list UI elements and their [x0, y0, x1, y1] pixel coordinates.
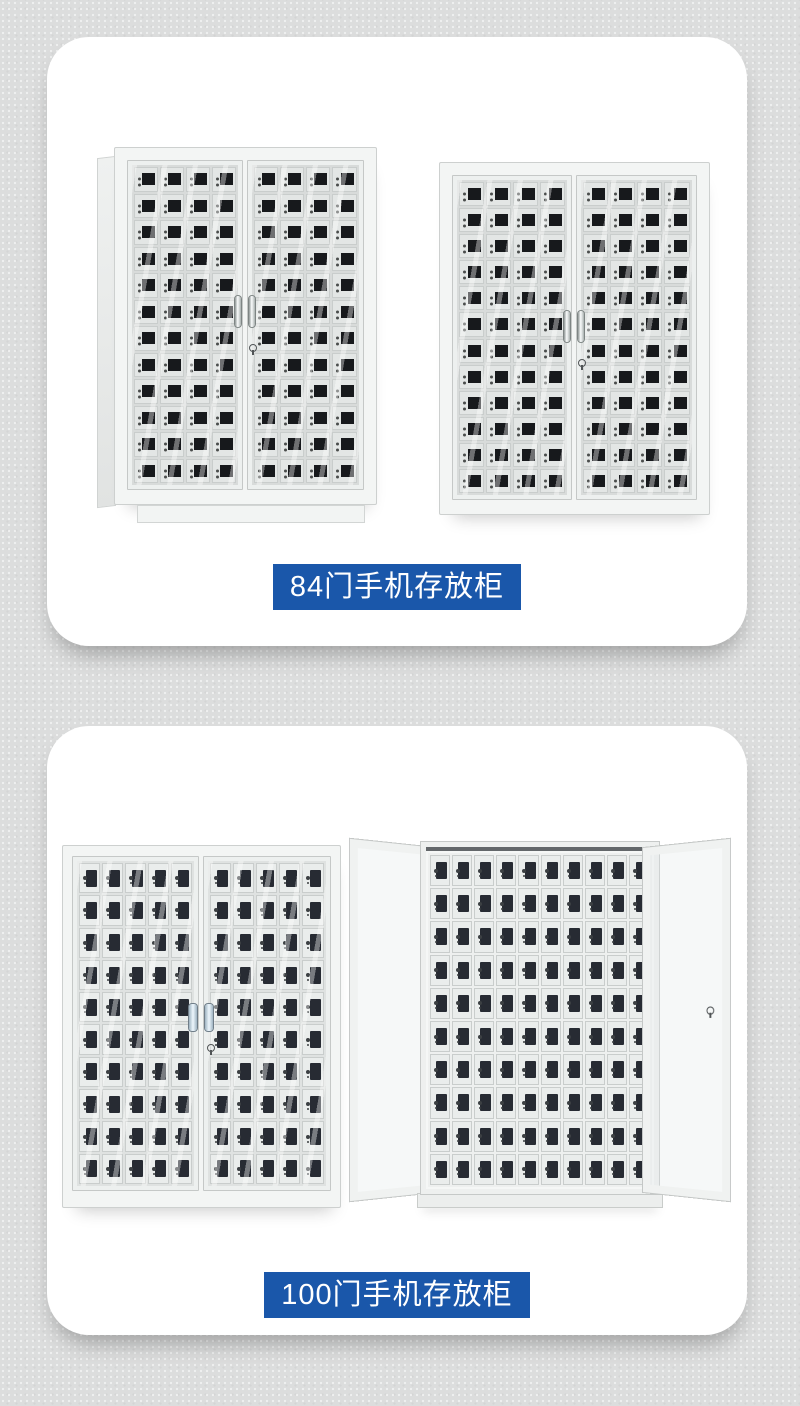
locker-cell [279, 895, 300, 925]
locker-cell [585, 855, 605, 886]
locker-cell [452, 1121, 472, 1152]
lock-icon [106, 876, 110, 880]
locker-cell [279, 863, 300, 893]
locker-window [646, 475, 659, 487]
locker-cell [186, 353, 210, 378]
lock-icon [138, 390, 141, 393]
lock-icon [567, 1035, 571, 1039]
locker-window [310, 999, 321, 1016]
locker-window [646, 345, 659, 357]
lock-icon [641, 297, 644, 300]
locker-cell [637, 182, 662, 206]
lock-icon [668, 349, 671, 352]
locker-cell [637, 286, 662, 310]
locker-cell [541, 988, 561, 1019]
lock-icon [434, 1134, 438, 1138]
lock-icon [545, 1035, 549, 1039]
lock-icon [83, 1135, 87, 1139]
lock-icon [284, 204, 287, 207]
locker-cell [585, 1087, 605, 1118]
locker-window [86, 1128, 97, 1145]
locker-window [194, 385, 207, 397]
lock-icon [260, 1102, 264, 1106]
lock-icon [478, 935, 482, 939]
locker-cell [256, 1057, 277, 1087]
locker-window [220, 438, 233, 450]
locker-cell [430, 888, 450, 919]
locker-cell [233, 863, 254, 893]
locker-cell [210, 1121, 231, 1151]
locker-cell [474, 1021, 494, 1052]
lock-icon [175, 973, 179, 977]
locker-window [286, 1031, 297, 1048]
lock-icon [214, 1070, 218, 1074]
locker-cell [637, 208, 662, 232]
lock-icon [668, 219, 671, 222]
locker-window [142, 359, 155, 371]
lock-icon [237, 1102, 241, 1106]
lock-icon [190, 231, 193, 234]
locker-window [155, 1096, 166, 1113]
lock-icon [310, 310, 313, 313]
locker-cell [452, 855, 472, 886]
lock-icon [190, 416, 193, 419]
locker-cell [610, 260, 635, 284]
locker-window [288, 332, 301, 344]
locker-window [288, 200, 301, 212]
lock-icon [310, 390, 313, 393]
locker-cell [79, 928, 100, 958]
locker-cell [459, 417, 484, 441]
locker-cell [540, 391, 565, 415]
locker-window [86, 1096, 97, 1113]
lock-icon [589, 1101, 593, 1105]
locker-window [288, 412, 301, 424]
lock-icon [522, 1035, 526, 1039]
lock-icon [175, 1070, 179, 1074]
locker-cell [102, 895, 123, 925]
locker-window [341, 173, 354, 185]
locker-window [674, 371, 687, 383]
locker-cell [637, 234, 662, 258]
locker-cell [563, 855, 583, 886]
locker-cell [306, 326, 330, 351]
locker-cell [233, 1121, 254, 1151]
locker-window [168, 465, 181, 477]
locker-cell [541, 855, 561, 886]
lock-icon [237, 1135, 241, 1139]
lock-icon [587, 245, 590, 248]
locker-cell [664, 208, 689, 232]
locker-cell [160, 167, 184, 192]
locker-cell [541, 955, 561, 986]
locker-cell [302, 1024, 323, 1054]
locker-cell [563, 988, 583, 1019]
locker-window [646, 397, 659, 409]
locker-cell [125, 1121, 146, 1151]
locker-window [468, 214, 481, 226]
locker-cell [102, 863, 123, 893]
locker-window [522, 266, 535, 278]
lock-icon [641, 453, 644, 456]
locker-window [240, 1128, 251, 1145]
lock-icon [490, 193, 493, 196]
locker-cell [160, 379, 184, 404]
lock-icon [190, 337, 193, 340]
locker-cell [518, 955, 538, 986]
locker-window [495, 188, 508, 200]
locker-cell [256, 928, 277, 958]
lock-icon [216, 337, 219, 340]
locker-cell [664, 443, 689, 467]
lock-icon [216, 443, 219, 446]
locker-window [495, 214, 508, 226]
locker-cell [171, 1154, 192, 1184]
locker-cell [607, 1121, 627, 1152]
locker-cell [134, 432, 158, 457]
lock-icon [614, 453, 617, 456]
locker-cell [563, 955, 583, 986]
lock-icon [138, 363, 141, 366]
locker-cell [637, 469, 662, 493]
lock-icon [522, 1101, 526, 1105]
locker-cell [664, 182, 689, 206]
lock-icon [152, 908, 156, 912]
lock-icon [283, 1005, 287, 1009]
locker-window [341, 279, 354, 291]
locker-cell [306, 273, 330, 298]
locker-cell [664, 286, 689, 310]
locker-window [674, 318, 687, 330]
locker-window [495, 292, 508, 304]
locker-cell [486, 286, 511, 310]
locker-window [155, 902, 166, 919]
locker-cell [513, 339, 538, 363]
lock-icon [478, 869, 482, 873]
lock-icon [668, 427, 671, 430]
locker-cell [518, 1054, 538, 1085]
handle-icon [564, 311, 570, 342]
locker-cell [486, 443, 511, 467]
locker-window [194, 200, 207, 212]
lock-icon [310, 231, 313, 234]
locker-cell [134, 353, 158, 378]
locker-window [495, 475, 508, 487]
locker-cell [585, 1121, 605, 1152]
locker-window [522, 345, 535, 357]
locker-window [262, 173, 275, 185]
lock-icon [614, 427, 617, 430]
locker-window [220, 359, 233, 371]
locker-window [495, 345, 508, 357]
lock-icon [260, 1038, 264, 1042]
locker-window [194, 438, 207, 450]
locker-window [592, 214, 605, 226]
locker-window [217, 1128, 228, 1145]
locker-window [142, 412, 155, 424]
lock-icon [544, 453, 547, 456]
lock-icon [522, 968, 526, 972]
locker-cell [459, 469, 484, 493]
locker-cell [459, 391, 484, 415]
lock-icon [589, 1035, 593, 1039]
locker-window [240, 1096, 251, 1113]
locker-cell [254, 167, 278, 192]
locker-window [194, 359, 207, 371]
locker-window [646, 214, 659, 226]
locker-cell [332, 220, 356, 245]
cabinet-door-right [203, 856, 331, 1191]
lock-icon [164, 231, 167, 234]
locker-cell [125, 1154, 146, 1184]
locker-cell [160, 326, 184, 351]
lock-icon [283, 1070, 287, 1074]
lock-icon [456, 1035, 460, 1039]
locker-cell [540, 469, 565, 493]
locker-window [314, 359, 327, 371]
locker-window [646, 371, 659, 383]
lock-icon [336, 284, 339, 287]
lock-icon [283, 1102, 287, 1106]
locker-cell [186, 432, 210, 457]
lock-icon [138, 284, 141, 287]
cabinet-door-right [576, 175, 697, 500]
locker-cell [541, 1054, 561, 1085]
lock-icon [83, 1070, 87, 1074]
lock-icon [545, 935, 549, 939]
lock-icon [589, 1068, 593, 1072]
lock-icon [641, 479, 644, 482]
locker-window [522, 397, 535, 409]
locker-cell [486, 182, 511, 206]
lock-icon [258, 363, 261, 366]
lock-icon [668, 453, 671, 456]
locker-window [468, 449, 481, 461]
lock-icon [190, 443, 193, 446]
lock-icon [138, 204, 141, 207]
locker-cell [186, 194, 210, 219]
locker-cell [459, 286, 484, 310]
lock-icon [490, 297, 493, 300]
locker-window [619, 292, 632, 304]
locker-window [178, 999, 189, 1016]
locker-cell [518, 888, 538, 919]
lock-icon [668, 479, 671, 482]
handle-icon [235, 296, 241, 327]
lock-icon [216, 390, 219, 393]
lock-icon [614, 271, 617, 274]
lock-icon [283, 941, 287, 945]
locker-cell [540, 417, 565, 441]
lock-icon [216, 416, 219, 419]
locker-window [220, 332, 233, 344]
locker-cell [212, 326, 236, 351]
lock-icon [260, 1005, 264, 1009]
lock-icon [258, 204, 261, 207]
locker-window [522, 188, 535, 200]
locker-cell [212, 220, 236, 245]
locker-window [262, 359, 275, 371]
locker-window [132, 1128, 143, 1145]
lock-icon [152, 876, 156, 880]
locker-cell [279, 1089, 300, 1119]
locker-window [495, 318, 508, 330]
locker-window [142, 438, 155, 450]
locker-cell [256, 992, 277, 1022]
keyhole-icon [706, 1006, 714, 1014]
locker-cell [210, 992, 231, 1022]
locker-cell [563, 1021, 583, 1052]
locker-window [549, 240, 562, 252]
lock-icon [336, 257, 339, 260]
locker-window [168, 173, 181, 185]
locker-cell [79, 960, 100, 990]
lock-icon [284, 257, 287, 260]
lock-icon [164, 337, 167, 340]
locker-cell [233, 895, 254, 925]
locker-window [155, 1031, 166, 1048]
lock-icon [138, 257, 141, 260]
lock-icon [544, 401, 547, 404]
door-glass-locker-grid [581, 180, 692, 495]
locker-window [178, 934, 189, 951]
locker-cell [212, 353, 236, 378]
locker-window [674, 423, 687, 435]
lock-icon [310, 416, 313, 419]
lock-icon [106, 1038, 110, 1042]
locker-cell [102, 992, 123, 1022]
locker-cell [583, 260, 608, 284]
lock-icon [260, 908, 264, 912]
locker-cell [212, 300, 236, 325]
lock-icon [237, 1038, 241, 1042]
locker-window [310, 1160, 321, 1177]
locker-cell [664, 391, 689, 415]
locker-cell [102, 1089, 123, 1119]
lock-icon [336, 469, 339, 472]
locker-cell [664, 312, 689, 336]
cabinet-door-left [452, 175, 573, 500]
locker-window [86, 1160, 97, 1177]
locker-cell [125, 1057, 146, 1087]
locker-window [314, 226, 327, 238]
lock-icon [260, 1135, 264, 1139]
locker-cell [125, 1089, 146, 1119]
locker-cell [125, 992, 146, 1022]
door-handles [189, 1004, 213, 1031]
locker-window [495, 397, 508, 409]
cabinet-base [417, 1193, 663, 1208]
lock-icon [310, 469, 313, 472]
locker-window [86, 999, 97, 1016]
locker-window [132, 902, 143, 919]
locker-window [619, 449, 632, 461]
lock-icon [190, 204, 193, 207]
lock-icon [138, 337, 141, 340]
lock-icon [336, 363, 339, 366]
locker-cell [280, 406, 304, 431]
locker-window [194, 279, 207, 291]
locker-cell [212, 273, 236, 298]
locker-window [495, 240, 508, 252]
door-glass-locker-grid [208, 861, 326, 1186]
locker-cell [212, 432, 236, 457]
lock-icon [260, 941, 264, 945]
lock-icon [258, 469, 261, 472]
lock-icon [258, 337, 261, 340]
lock-icon [310, 284, 313, 287]
lock-icon [216, 284, 219, 287]
lock-icon [152, 1102, 156, 1106]
lock-icon [456, 968, 460, 972]
locker-cell [279, 1154, 300, 1184]
locker-cell [134, 326, 158, 351]
locker-cell [486, 417, 511, 441]
locker-cell [332, 353, 356, 378]
locker-cell [332, 406, 356, 431]
locker-window [109, 1063, 120, 1080]
locker-window [619, 266, 632, 278]
lock-icon [456, 1101, 460, 1105]
locker-cell [540, 234, 565, 258]
locker-cell [148, 992, 169, 1022]
lock-icon [478, 1068, 482, 1072]
locker-cell [496, 1121, 516, 1152]
lock-icon [216, 231, 219, 234]
locker-cell [332, 432, 356, 457]
lock-icon [517, 193, 520, 196]
locker-cell [148, 1121, 169, 1151]
locker-window [341, 253, 354, 265]
locker-window [262, 200, 275, 212]
locker-cell [459, 182, 484, 206]
locker-window [522, 371, 535, 383]
locker-cell [332, 247, 356, 272]
locker-cell [513, 208, 538, 232]
locker-window [288, 253, 301, 265]
door-glass-locker-grid [77, 861, 195, 1186]
lock-icon [587, 297, 590, 300]
locker-window [178, 870, 189, 887]
locker-cell [302, 960, 323, 990]
lock-icon [478, 1035, 482, 1039]
lock-icon [260, 1167, 264, 1171]
locker-window [592, 371, 605, 383]
locker-cell [540, 312, 565, 336]
lock-icon [152, 973, 156, 977]
lock-icon [611, 1035, 615, 1039]
lock-icon [152, 1070, 156, 1074]
locker-cell [474, 1121, 494, 1152]
locker-window [263, 1063, 274, 1080]
locker-window [549, 318, 562, 330]
locker-cell [513, 182, 538, 206]
lock-icon [490, 219, 493, 222]
lock-icon [336, 390, 339, 393]
locker-cell [607, 921, 627, 952]
locker-cell [563, 1087, 583, 1118]
locker-window [263, 967, 274, 984]
lock-icon [633, 968, 637, 972]
locker-cell [134, 194, 158, 219]
locker-window [619, 318, 632, 330]
locker-window [310, 1063, 321, 1080]
locker-window [263, 934, 274, 951]
lock-icon [306, 1038, 310, 1042]
locker-window [522, 292, 535, 304]
lock-icon [456, 1068, 460, 1072]
locker-cell [585, 988, 605, 1019]
